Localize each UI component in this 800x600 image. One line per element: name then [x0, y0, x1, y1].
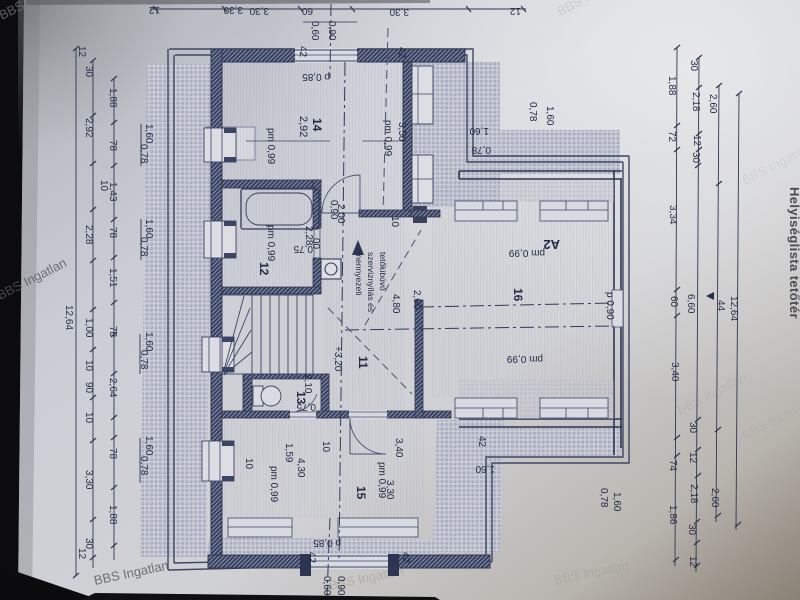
svg-text:44: 44	[715, 300, 726, 312]
svg-text:3,30: 3,30	[389, 6, 409, 17]
svg-text:42: 42	[297, 46, 308, 58]
svg-text:1,86: 1,86	[667, 505, 678, 525]
svg-text:12: 12	[687, 452, 698, 464]
svg-text:pm 0,99: pm 0,99	[268, 466, 279, 503]
svg-text:30: 30	[686, 524, 697, 536]
svg-text:78: 78	[107, 227, 118, 239]
svg-text:78: 78	[107, 448, 118, 460]
svg-text:3,30: 3,30	[223, 4, 243, 15]
svg-text:p 0,90: p 0,90	[604, 292, 615, 320]
svg-text:10: 10	[389, 216, 400, 228]
svg-text:12: 12	[509, 5, 521, 16]
svg-text:tetőkibúvó: tetőkibúvó	[378, 252, 388, 291]
svg-text:1,00: 1,00	[83, 318, 94, 338]
svg-text:1,60: 1,60	[469, 125, 489, 136]
svg-text:12,64: 12,64	[63, 305, 74, 330]
svg-text:2,10: 2,10	[302, 374, 313, 394]
svg-text:2,60: 2,60	[709, 488, 720, 508]
svg-text:pm 0,99: pm 0,99	[265, 128, 276, 165]
svg-text:1,60: 1,60	[475, 463, 495, 474]
svg-text:1,60: 1,60	[143, 219, 154, 239]
svg-text:16: 16	[511, 288, 525, 302]
svg-text:0,78: 0,78	[138, 144, 149, 164]
svg-text:p 0,85: p 0,85	[313, 537, 341, 548]
svg-text:1,60: 1,60	[143, 436, 154, 456]
svg-text:1,60: 1,60	[143, 332, 154, 352]
svg-text:pm 0,99: pm 0,99	[508, 247, 545, 258]
svg-text:30: 30	[687, 422, 698, 434]
svg-text:1,60: 1,60	[143, 124, 154, 144]
svg-text:90: 90	[83, 382, 94, 394]
svg-text:12: 12	[148, 4, 160, 15]
svg-text:1,60: 1,60	[611, 492, 622, 512]
svg-text:0,75: 0,75	[296, 401, 316, 412]
svg-text:1,60: 1,60	[544, 106, 555, 126]
svg-text:0,78: 0,78	[471, 144, 491, 155]
svg-text:1,51: 1,51	[107, 268, 118, 288]
svg-text:3,30: 3,30	[384, 480, 395, 500]
svg-text:1,59: 1,59	[283, 443, 294, 463]
svg-text:2,28: 2,28	[83, 225, 94, 245]
svg-text:2,64: 2,64	[107, 378, 118, 398]
svg-text:2,18: 2,18	[688, 484, 699, 504]
svg-text:2,00: 2,00	[411, 290, 422, 310]
svg-text:2,92: 2,92	[83, 118, 94, 138]
svg-text:78: 78	[107, 326, 118, 338]
svg-text:12,64: 12,64	[728, 296, 739, 321]
svg-text:3,40: 3,40	[669, 362, 680, 382]
svg-text:szerviznyílás és: szerviznyílás és	[366, 252, 376, 312]
svg-text:42: 42	[306, 552, 317, 564]
svg-text:0,78: 0,78	[138, 237, 149, 257]
svg-text:pm 0,99: pm 0,99	[265, 225, 276, 262]
svg-text:12: 12	[257, 262, 271, 276]
svg-text:4,80: 4,80	[390, 294, 401, 314]
svg-text:12: 12	[76, 548, 87, 560]
svg-text:6,60: 6,60	[685, 294, 696, 314]
svg-text:60: 60	[301, 5, 313, 16]
svg-text:+3,20: +3,20	[332, 346, 343, 372]
svg-text:12: 12	[76, 46, 87, 58]
svg-text:42: 42	[396, 47, 407, 59]
svg-text:0,60: 0,60	[309, 21, 320, 41]
svg-text:30: 30	[690, 152, 701, 164]
svg-text:0,78: 0,78	[138, 350, 149, 370]
svg-text:12: 12	[691, 135, 702, 147]
svg-text:15: 15	[354, 486, 368, 500]
svg-text:11: 11	[356, 356, 370, 369]
svg-text:0,78: 0,78	[138, 456, 149, 476]
svg-text:0,90: 0,90	[326, 21, 337, 41]
svg-text:0,75: 0,75	[293, 243, 313, 254]
svg-text:10: 10	[243, 458, 254, 470]
svg-text:p 0,85: p 0,85	[302, 71, 330, 82]
svg-text:10: 10	[83, 360, 94, 372]
svg-text:Helyiséglista tetőtér: Helyiséglista tetőtér	[787, 187, 800, 319]
svg-text:2,60: 2,60	[707, 94, 718, 114]
svg-text:1,88: 1,88	[107, 88, 118, 108]
svg-text:pm 0,99: pm 0,99	[382, 120, 393, 157]
svg-text:2,18: 2,18	[690, 92, 701, 112]
svg-text:0,60: 0,60	[321, 576, 332, 596]
svg-text:3,50: 3,50	[396, 122, 407, 142]
svg-text:mennyezeti: mennyezeti	[354, 252, 364, 296]
svg-text:30: 30	[83, 66, 94, 78]
svg-text:14: 14	[310, 118, 324, 132]
svg-text:1,88: 1,88	[666, 76, 677, 96]
svg-text:78: 78	[107, 140, 118, 152]
svg-text:42: 42	[476, 436, 487, 448]
svg-text:12: 12	[687, 556, 698, 568]
svg-text:72: 72	[666, 131, 677, 143]
svg-text:1,88: 1,88	[107, 505, 118, 525]
svg-text:10: 10	[320, 441, 331, 453]
svg-text:3,40: 3,40	[393, 438, 404, 458]
svg-text:10: 10	[83, 412, 94, 424]
svg-text:1,43: 1,43	[107, 182, 118, 202]
svg-text:30: 30	[688, 60, 699, 72]
svg-text:42: 42	[400, 552, 411, 564]
svg-text:3,30: 3,30	[249, 5, 269, 16]
svg-text:2,92: 2,92	[297, 116, 309, 137]
svg-text:4,30: 4,30	[295, 458, 306, 478]
svg-text:3,30: 3,30	[83, 470, 94, 490]
svg-text:pm 0,99: pm 0,99	[506, 353, 543, 364]
svg-text:0,78: 0,78	[598, 488, 609, 508]
svg-text:0,78: 0,78	[527, 102, 538, 122]
svg-text:3,34: 3,34	[667, 205, 678, 225]
svg-text:0,90: 0,90	[335, 576, 346, 596]
svg-text:74: 74	[667, 460, 678, 472]
svg-text:60: 60	[668, 296, 679, 308]
svg-text:2,00: 2,00	[335, 204, 346, 224]
